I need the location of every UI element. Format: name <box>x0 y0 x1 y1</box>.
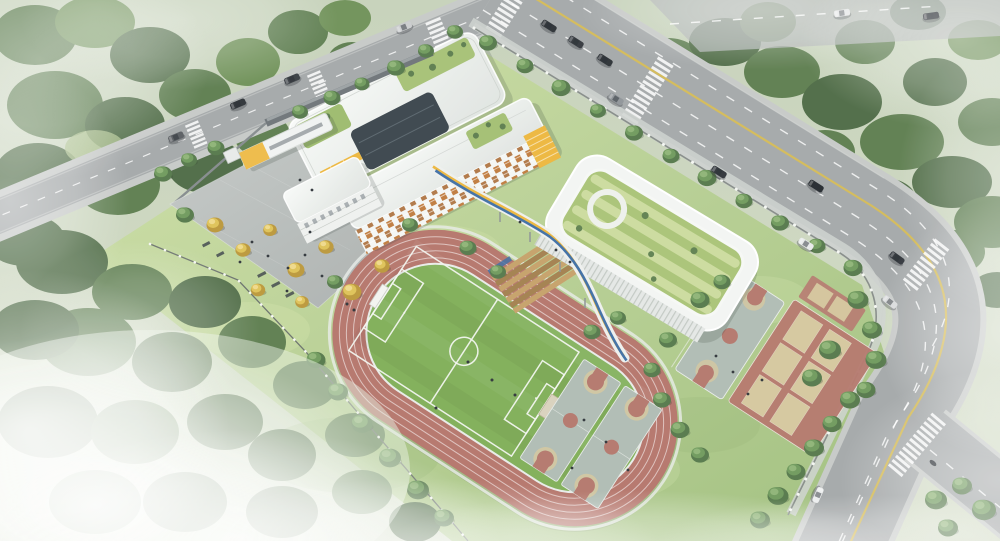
atmosphere-veil <box>0 0 1000 541</box>
rendering-canvas <box>0 0 1000 541</box>
fog-layer <box>0 0 1000 541</box>
campus-aerial-rendering: Aerial rendering of a school campus with… <box>0 0 1000 541</box>
